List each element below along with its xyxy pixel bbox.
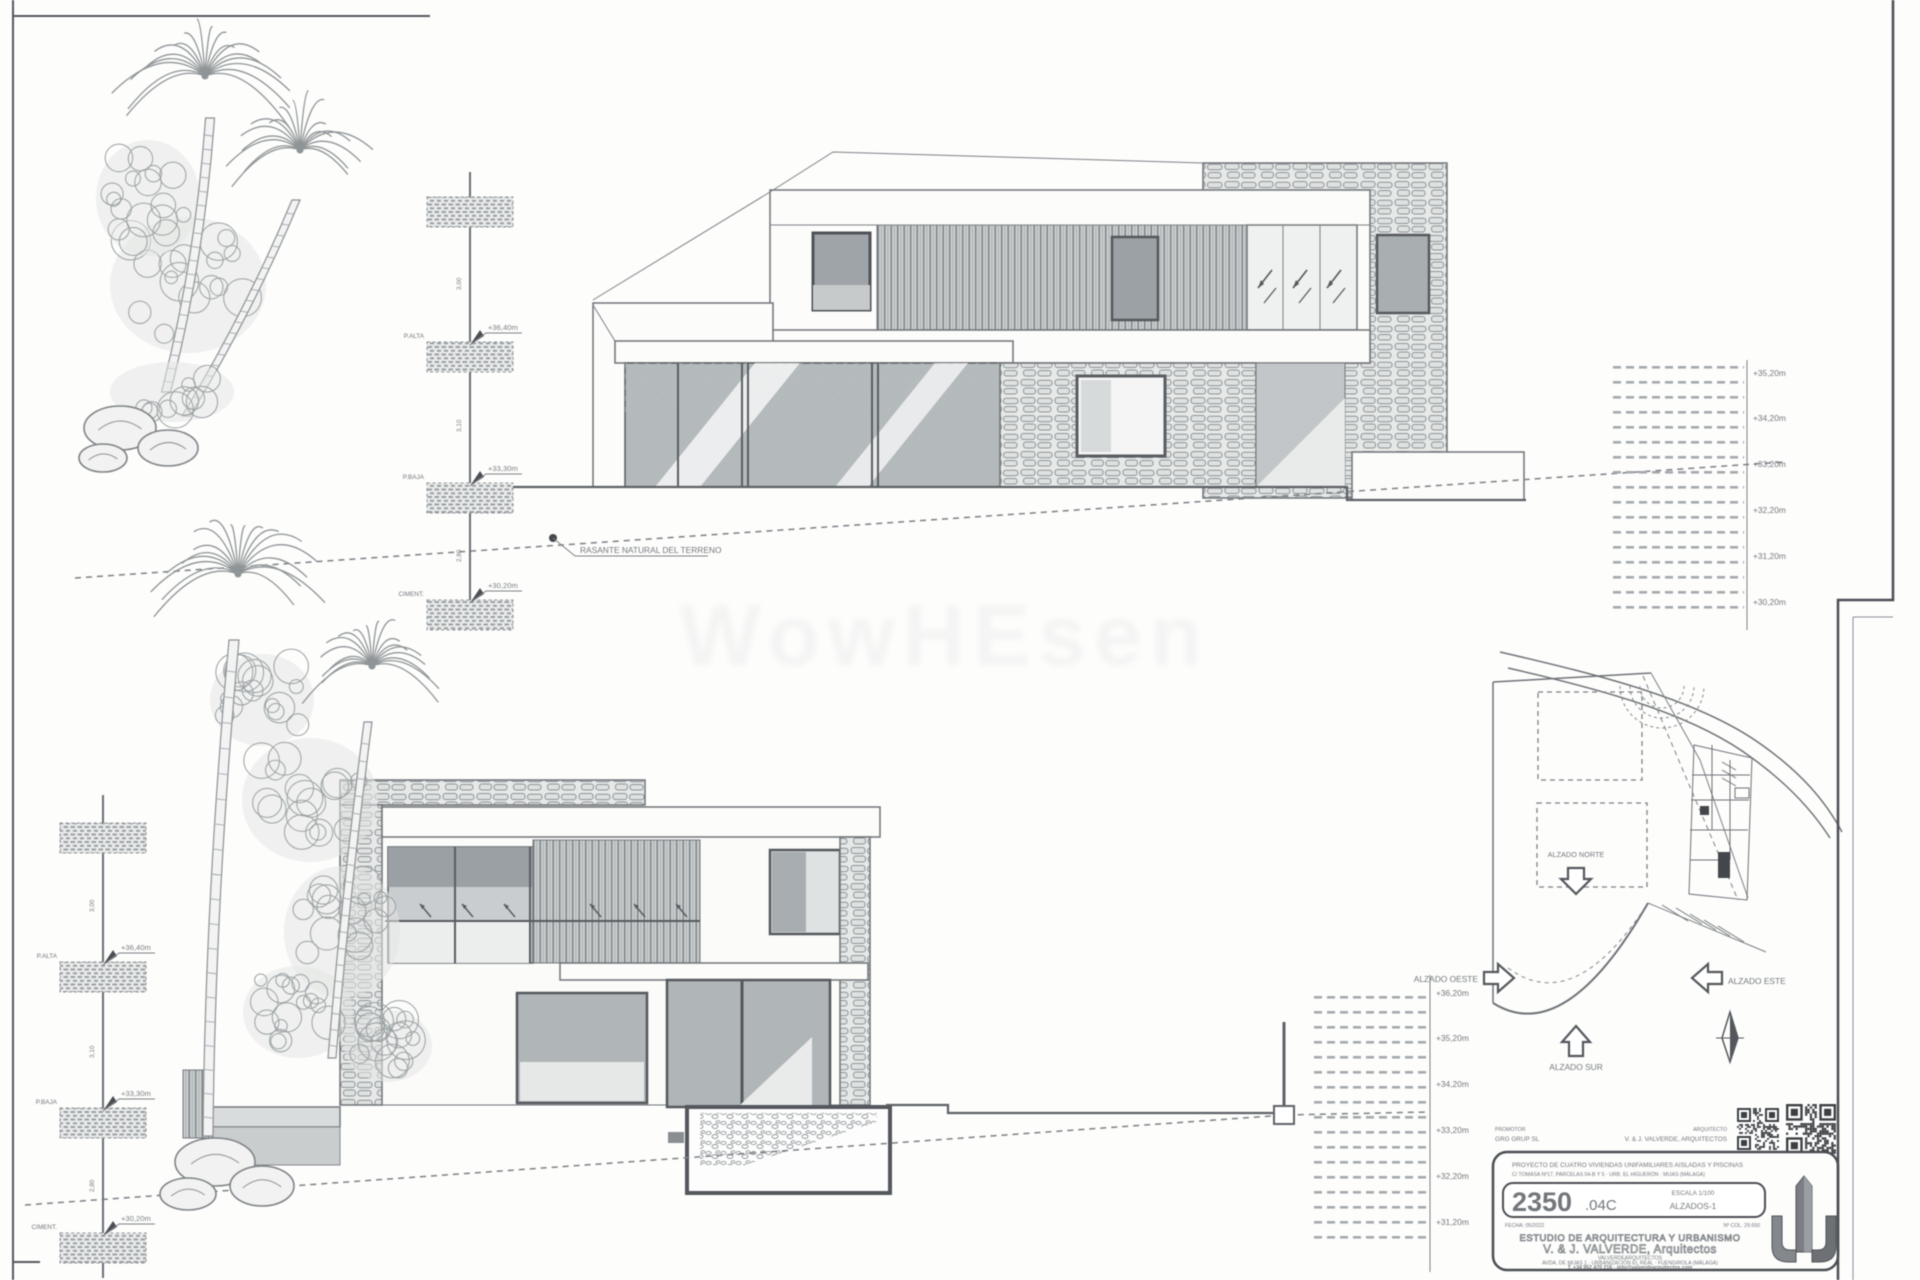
ruler-label: +35,20m [1436,1033,1469,1043]
drawing-sheet: WowHEsen [0,0,1920,1280]
north-compass-icon [1716,1012,1744,1062]
north-facade-arrow-icon [1561,868,1591,894]
garden-fence [1352,452,1524,500]
ruler-label: +34,20m [1436,1079,1469,1089]
dim-text: 2,80 [89,1179,96,1192]
stone-parapet [340,780,645,805]
ruler-label: +35,20m [1753,368,1786,378]
west-facade-arrow-icon [1484,964,1514,992]
alzado-oeste-label: ALZADO OESTE [1414,974,1479,984]
east-facade-arrow-icon [1692,964,1722,992]
ruler-label: +30,20m [1753,597,1786,607]
setback-rect-2 [1537,803,1647,887]
dim-text: 3,00 [456,277,463,290]
site-plan: ALZADO NORTE ALZADO OESTE ALZADO ESTE AL… [1414,652,1842,1072]
slat-strip [877,225,1247,330]
level-elev: +33,30m [121,1089,151,1098]
ruler-label: +31,20m [1436,1217,1469,1227]
qr-code-1 [1735,1106,1781,1152]
balcony-interior [390,920,531,963]
top-elevation: RASANTE NATURAL DEL TERRENO [75,152,1784,578]
corner-window-shade [772,852,806,932]
level-elev: +30,20m [488,581,518,590]
studio-line2: V. & J. VALVERDE, Arquitectos [1543,1244,1716,1256]
level-mark-ciment-top: +30,20m CIMENT. [398,581,522,603]
level-name: P.BAJA [36,1099,58,1106]
level-name: P.ALTA [404,333,425,340]
colegio-number: Nº COL. 29.650 [1724,1223,1761,1229]
project-line1: PROYECTO DE CUATRO VIVIENDAS UNIFAMILIAR… [1512,1162,1743,1169]
window-2 [1112,237,1158,320]
architect-label: ARQUITECTO [1693,1127,1727,1133]
level-elev: +30,20m [121,1214,151,1223]
promoter-value: GRG GRUP SL [1495,1136,1540,1143]
level-elev: +36,40m [121,943,151,952]
level-mark-ciment-bottom: +30,20m CIMENT. [31,1214,155,1236]
south-facade-arrow-icon [1562,1026,1590,1056]
ruler-label: +36,20m [1436,988,1469,998]
datum-bar-bottom: +36,40m P.ALTA +33,30m P.BAJA +30,20m CI… [31,795,155,1278]
pool-inlet [668,1132,684,1143]
ruler-label: +32,20m [1436,1171,1469,1181]
ruler-label: +33,20m [1436,1125,1469,1135]
project-number: 2350 [1512,1187,1572,1217]
studio-line1: ESTUDIO DE ARQUITECTURA Y URBANISMO [1520,1233,1741,1244]
stone-wall-window-shade [1081,380,1111,452]
qr-code-2 [1784,1102,1838,1156]
window-1-sill [813,285,870,310]
inner-arc-dashed [1508,912,1642,983]
setback-rect-1 [1538,692,1642,780]
dim-text: 2,80 [456,549,463,562]
ruler-label: +34,20m [1753,413,1786,423]
slat-screen [533,840,700,963]
level-elev: +36,40m [488,323,518,332]
watermark: WowHEsen [680,588,1211,684]
date-value: FECHA: 05/2022 [1505,1223,1544,1229]
dim-text: 3,00 [89,899,96,912]
dim-text: 3,10 [456,419,463,432]
ruler-label: +31,20m [1753,551,1786,561]
sheet-canvas: WowHEsen [0,0,1920,1280]
building-footprint [1662,745,1752,942]
project-number-suffix: .04C [1585,1197,1617,1214]
scale-label: ESCALA 1/100 [1672,1190,1715,1197]
alzado-norte-label: ALZADO NORTE [1548,850,1605,859]
level-name: P.ALTA [37,953,58,960]
level-name: CIMENT. [31,1224,57,1231]
alzado-este-label: ALZADO ESTE [1728,976,1786,986]
architect-value: V. & J. VALVERDE, ARQUITECTOS [1625,1136,1727,1143]
plot-boundary [1493,673,1651,1003]
plot-arc [1493,903,1648,1014]
canopy-slab [615,341,1013,363]
dim-text: 3,10 [89,1045,96,1058]
gf-window-1-lower [520,1062,644,1101]
balcony-doors-shade [388,847,533,887]
boundary-post-base [1274,1106,1294,1124]
level-elev: +33,30m [488,464,518,473]
terrain-label: RASANTE NATURAL DEL TERRENO [580,545,722,555]
datum-bar-top: +36,40m P.ALTA +33,30m P.BAJA +30,20m CI… [398,172,522,630]
stone-volume-window [1377,235,1429,313]
alzado-sur-label: ALZADO SUR [1549,1062,1603,1072]
ruler-top-right: +35,20m +34,20m +33,20m +32,20m +31,20m … [1612,360,1786,630]
project-line2: C/ TOMASA Nº17, PARCELAS 04-B Y 5 · URB.… [1512,1171,1705,1178]
roof-back-edge [770,152,1203,192]
contact-line: T. +34 952 470 216 · info@valverdearquit… [1568,1265,1693,1271]
sheet-name: ALZADOS-1 [1670,1201,1717,1211]
palm-trees-top [79,19,373,472]
floor-slab [560,963,868,980]
ruler-label: +32,20m [1753,505,1786,515]
promoter-label: PROMOTOR [1495,1127,1526,1133]
roof-fascia [382,807,880,837]
ruler-bottom-right: +36,20m +35,20m +34,20m +33,20m +32,20m … [1310,975,1469,1272]
level-name: P.BAJA [403,474,425,481]
ground-line-bottom [886,1105,1290,1113]
ruler-label: +33,20m [1753,459,1786,469]
terrace-deck [198,1107,340,1127]
level-name: CIMENT. [398,591,424,598]
road-inner [1508,668,1830,838]
